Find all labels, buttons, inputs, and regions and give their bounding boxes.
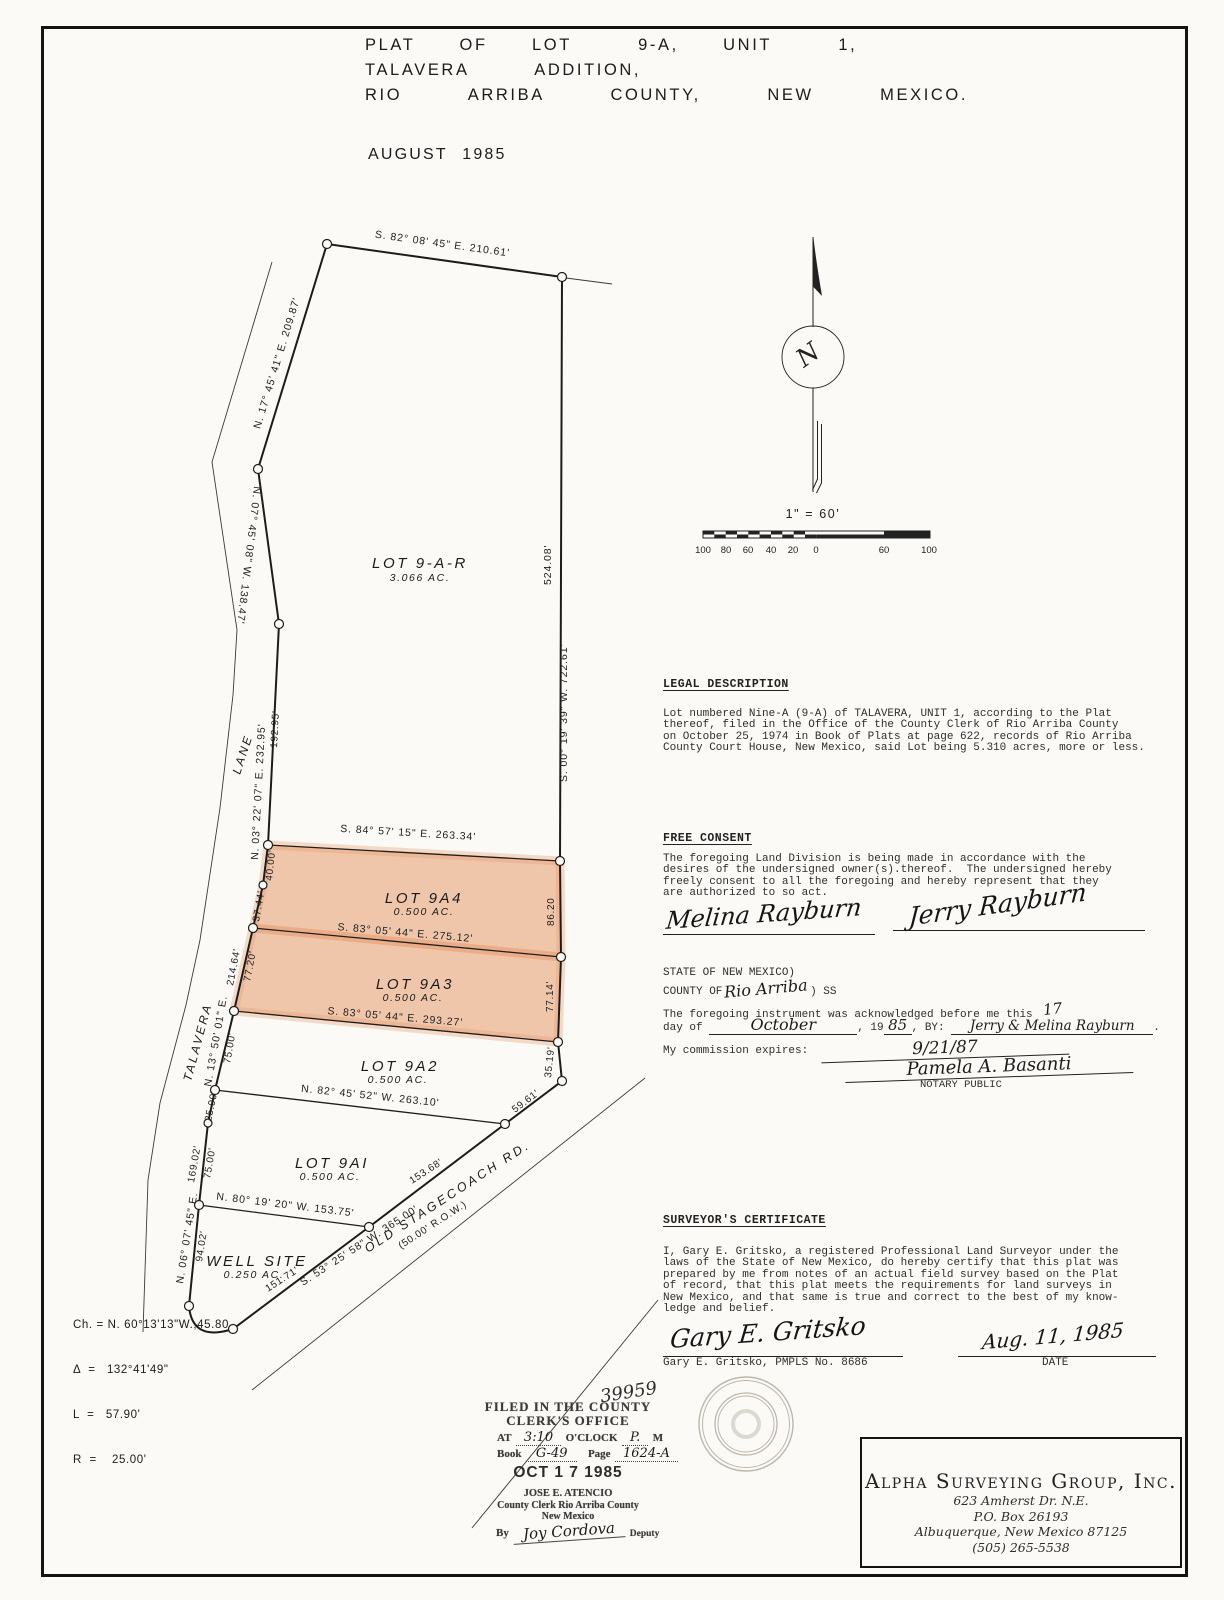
scale-tick: 20: [788, 545, 799, 556]
certificate-line: ledge and belief.: [663, 1304, 1118, 1315]
lot-9a2-name: LOT 9A2: [361, 1058, 439, 1075]
expires-label: My commission expires:: [663, 1045, 808, 1057]
by-label: By: [496, 1527, 509, 1539]
bearing-9a2-bot: N. 82° 45' 52" W. 263.10': [301, 1083, 440, 1109]
curve-radius: R = 25.00': [73, 1453, 229, 1468]
firm-info-box: Alpha Surveying Group, Inc. 623 Amherst …: [860, 1437, 1182, 1568]
dist-w1-inner: 192.95': [269, 710, 282, 748]
legal-line: County Court House, New Mexico, said Lot…: [663, 743, 1145, 754]
lot-9a4-area: 0.500 AC.: [394, 906, 455, 918]
well-site-area: 0.250 AC.: [224, 1269, 285, 1281]
book-handwritten: G-49: [526, 1446, 578, 1462]
clerk-name: JOSE E. ATENCIO: [524, 1488, 613, 1499]
surveyor-seal: [699, 1377, 793, 1471]
year-prefix: , 19: [857, 1022, 883, 1034]
lot-9a1-area: 0.500 AC.: [300, 1171, 361, 1183]
firm-address-2: P.O. Box 26193: [862, 1509, 1180, 1525]
by-label: , BY:: [912, 1022, 952, 1034]
page-label: Page: [588, 1448, 611, 1460]
signature-line: [663, 934, 875, 935]
book-label: Book: [497, 1448, 521, 1460]
dist-3519: 35.19': [543, 1046, 557, 1078]
signature-line: [893, 930, 1145, 931]
clerk-title: County Clerk Rio Arriba County: [497, 1500, 639, 1511]
scale-label: 1" = 60': [786, 507, 841, 521]
dist-15368: 153.68': [408, 1157, 445, 1187]
scale-tick-labels: 100 80 60 40 20 0 60 100: [695, 545, 937, 556]
dist-5961: 59.61': [510, 1088, 541, 1116]
scale-tick: 100: [695, 545, 711, 556]
firm-address-3: Albuquerque, New Mexico 87125: [862, 1524, 1180, 1540]
road-name-label: OLD STAGECOACH RD.: [362, 1138, 533, 1256]
scale-bar: 1" = 60' 100 80 60 40 20 0 60 100: [695, 507, 937, 556]
lot-9ar-area: 3.066 AC.: [390, 572, 451, 584]
stamp-date: OCT 1 7 1985: [513, 1464, 622, 1482]
notary-signature-wrap: Pamela A. Basanti: [845, 1056, 1133, 1078]
scale-tick: 100: [921, 545, 937, 556]
oclock-label: O'CLOCK: [566, 1432, 618, 1444]
lot-9a1-name: LOT 9AI: [295, 1155, 369, 1172]
bearing-9a1-bot: N. 80° 19' 20" W. 153.75': [216, 1191, 355, 1220]
north-arrow: N: [782, 237, 844, 493]
notary-title: NOTARY PUBLIC: [920, 1080, 1002, 1091]
stamp-book-line: Book G-49 Page 1624-A: [497, 1444, 678, 1462]
day-of-label: day of: [663, 1022, 709, 1034]
north-arrow-head: [814, 238, 823, 296]
surveyor-printed-name: Gary E. Gritsko, PMPLS No. 8686: [663, 1358, 868, 1369]
scale-tick: 60: [743, 545, 754, 556]
month-handwritten: October: [709, 1015, 857, 1035]
firm-phone: (505) 265-5538: [862, 1540, 1180, 1556]
legal-heading: LEGAL DESCRIPTION: [663, 678, 1145, 691]
parcel-boundary: [189, 244, 562, 1332]
dist-7500a: 75.00': [222, 1032, 238, 1065]
lot-9a3-name: LOT 9A3: [376, 976, 454, 993]
scale-tick: 0: [813, 545, 818, 556]
deputy-signature: Joy Cordova: [513, 1518, 626, 1545]
curve-chord: Ch. = N. 60°13'13"W.,45.80: [73, 1318, 229, 1333]
dist-2500: 25.00': [203, 1090, 220, 1123]
bearing-9a4-top: S. 84° 57' 15" E. 263.34': [340, 823, 477, 843]
consent-heading: FREE CONSENT: [663, 832, 1112, 845]
bearing-e-outer: S. 00° 19' 39" W. 722.61': [558, 644, 570, 782]
curve-delta: Δ = 132°41'49": [73, 1363, 229, 1378]
dist-e-inner: 524.08': [542, 545, 554, 585]
dist-7714: 77.14': [545, 981, 556, 1012]
scale-tick: 60: [879, 545, 890, 556]
notary-ack-line2: day of October, 1985, BY: Jerry & Melina…: [663, 1015, 1160, 1035]
year-handwritten: 85: [884, 1016, 912, 1035]
bearing-top: S. 82° 08' 45" E. 210.61': [374, 229, 510, 260]
curve-length: L = 57.90': [73, 1408, 229, 1423]
stamp-line-2: CLERK'S OFFICE: [506, 1413, 629, 1429]
scale-tick: 40: [766, 545, 777, 556]
scale-tick: 80: [721, 545, 732, 556]
county-ss: ) SS: [810, 986, 836, 998]
bearing-nw2: N. 07° 45' 08" W. 138.47': [234, 486, 263, 625]
dist-16902: 169.02': [186, 1145, 203, 1184]
notary-county-line: COUNTY OFRio Arriba) SS: [663, 979, 836, 999]
well-site-name: WELL SITE: [206, 1253, 307, 1270]
lot-9a2-area: 0.500 AC.: [368, 1074, 429, 1086]
lane-name-lane: LANE: [230, 733, 256, 776]
at-label: AT: [497, 1432, 511, 1444]
county-prefix: COUNTY OF: [663, 986, 722, 998]
surveyor-certificate-section: SURVEYOR'S CERTIFICATE I, Gary E. Gritsk…: [663, 1214, 1118, 1315]
names-handwritten: Jerry & Melina Rayburn: [951, 1018, 1153, 1035]
corner-monuments: [185, 240, 567, 1334]
period: .: [1153, 1022, 1160, 1034]
deputy-line: By Joy Cordova Deputy: [496, 1522, 659, 1541]
deputy-label: Deputy: [630, 1529, 660, 1539]
m-label: M: [653, 1432, 663, 1444]
bearing-nw1: N. 17° 45' 41" E. 209.87': [251, 296, 302, 430]
county-handwritten: Rio Arriba: [724, 975, 809, 1001]
curve-data-block: Ch. = N. 60°13'13"W.,45.80 Δ = 132°41'49…: [73, 1288, 229, 1498]
lot-9a3-area: 0.500 AC.: [383, 992, 444, 1004]
certificate-date-label: DATE: [1042, 1358, 1068, 1369]
certificate-heading: SURVEYOR'S CERTIFICATE: [663, 1214, 1118, 1227]
lot-9ar-name: LOT 9-A-R: [372, 555, 468, 572]
firm-address-1: 623 Amherst Dr. N.E.: [862, 1493, 1180, 1509]
north-letter: N: [790, 336, 826, 374]
dist-8620: 86.20: [546, 897, 557, 926]
legal-description-section: LEGAL DESCRIPTION Lot numbered Nine-A (9…: [663, 678, 1145, 755]
plat-document-page: PLAT OF LOT 9-A, UNIT 1, TALAVERA ADDITI…: [0, 0, 1224, 1600]
page-handwritten: 1624-A: [615, 1446, 678, 1462]
firm-name: Alpha Surveying Group, Inc.: [862, 1469, 1180, 1493]
lot-9a4-name: LOT 9A4: [385, 890, 463, 907]
certificate-line: of record, that this plat meets the requ…: [663, 1281, 1118, 1292]
